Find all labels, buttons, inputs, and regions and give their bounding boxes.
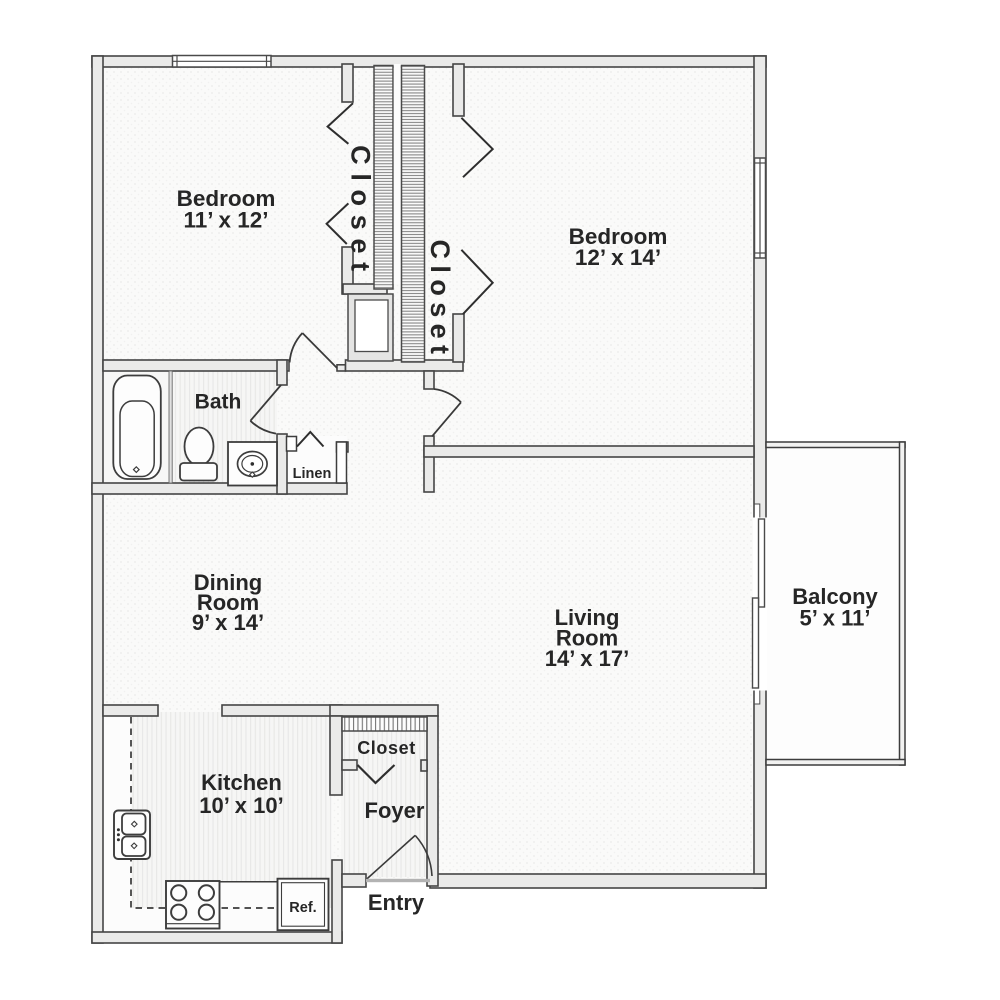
svg-text:5’ x 11’: 5’ x 11’ [800,606,871,631]
svg-text:Closet: Closet [357,738,416,758]
svg-text:Linen: Linen [293,466,332,482]
svg-text:10’ x 10’: 10’ x 10’ [199,793,283,818]
svg-text:Foyer: Foyer [365,798,425,823]
svg-text:Bath: Bath [195,391,242,414]
svg-text:Kitchen: Kitchen [201,770,282,795]
svg-text:Closet: Closet [346,145,376,280]
svg-text:Closet: Closet [425,240,455,361]
svg-text:Entry: Entry [368,890,425,915]
svg-text:9’ x 14’: 9’ x 14’ [192,610,264,635]
svg-text:11’ x 12’: 11’ x 12’ [183,208,268,233]
svg-text:Ref.: Ref. [289,900,316,916]
svg-text:14’ x 17’: 14’ x 17’ [545,646,629,671]
svg-text:12’ x 14’: 12’ x 14’ [575,245,661,270]
